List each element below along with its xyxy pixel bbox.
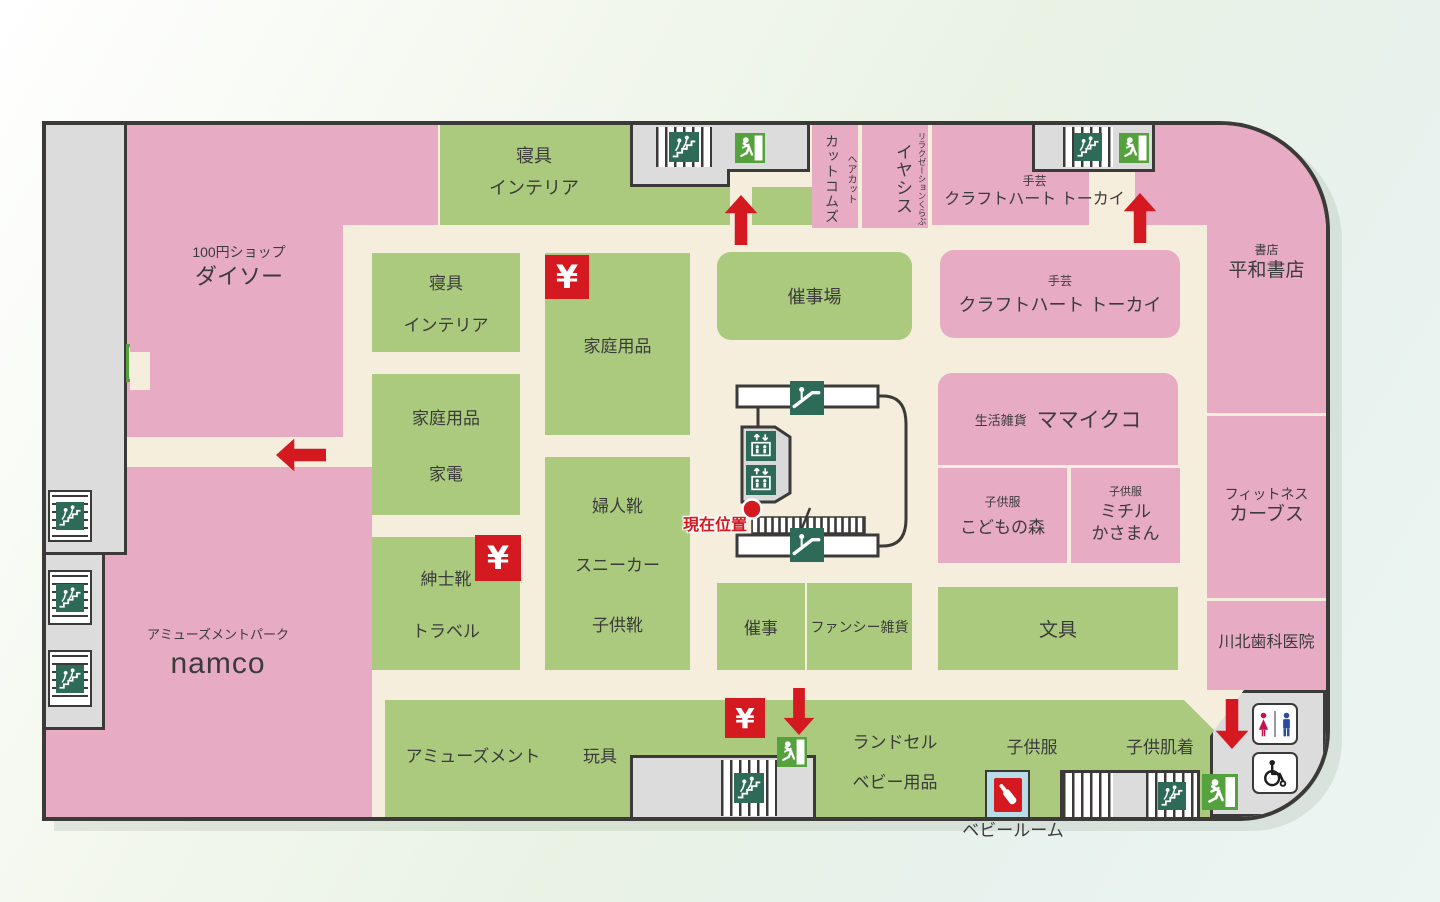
- store-category: ヘアカット: [843, 129, 858, 228]
- exit-icon: [777, 733, 807, 771]
- store-category: リラクゼーションくらぶ: [916, 129, 928, 228]
- stairs-hatch: [656, 127, 712, 167]
- store-name: 子供服: [1007, 738, 1058, 757]
- wheelchair-sign: [1252, 752, 1298, 794]
- label-kids-clothes: 子供服: [997, 737, 1067, 759]
- store-name: ファンシー雑貨: [811, 617, 909, 637]
- store-name-line: インテリア: [448, 173, 620, 205]
- exit-icon: [1202, 770, 1238, 814]
- walk-green-under-stairs: [630, 187, 730, 225]
- store-name: クラフトハート トーカイ: [932, 190, 1137, 211]
- stairs-icon: [56, 584, 84, 612]
- store-name-line: 寝具: [448, 141, 620, 173]
- store-name: イヤシス: [890, 129, 915, 228]
- stairs-hatch: [1063, 773, 1113, 818]
- direction-arrow-down: [782, 688, 816, 735]
- facility-name: ベビールーム: [962, 821, 1064, 840]
- stairwell-top-center: [630, 125, 810, 172]
- walkway-notch: [752, 172, 812, 187]
- label-craftheart-north: 手芸 クラフトハート トーカイ: [932, 174, 1137, 210]
- stairs-icon: [56, 502, 84, 530]
- store-area-kodomono-mori: 子供服 こどもの森: [938, 468, 1067, 563]
- store-name: 催事場: [788, 283, 842, 309]
- stairs-hatch: [1146, 773, 1197, 818]
- stairs-icon: [734, 773, 764, 803]
- baby-bottle-icon: [994, 778, 1022, 812]
- store-category: 手芸: [932, 174, 1137, 190]
- baby-room-area: [985, 770, 1030, 818]
- store-area-michiru-kasaman: 子供服 ミチル かさまん: [1071, 468, 1180, 563]
- escalator-icon: [790, 528, 824, 562]
- elevator-icon: [746, 431, 776, 461]
- store-area-futon-interior: 寝具 インテリア: [372, 253, 520, 352]
- store-category: 子供服: [984, 493, 1020, 510]
- store-category: 100円ショップ: [154, 243, 324, 261]
- stairs-left-1: [48, 490, 92, 542]
- stairs-icon: [56, 665, 84, 693]
- label-namco: アミューズメントパーク namco: [138, 627, 298, 683]
- toilet-man-icon: [1279, 711, 1294, 738]
- store-name-line: ランドセル: [840, 723, 950, 763]
- store-area-iyashisu: リラクゼーションくらぶ イヤシス: [862, 125, 928, 228]
- label-heiwa-shoten: 書店 平和書店: [1207, 243, 1326, 283]
- stairs-icon: [1074, 133, 1102, 161]
- exit-icon: [1119, 130, 1149, 166]
- stairs-left-3: [48, 650, 92, 707]
- store-category: 書店: [1207, 243, 1326, 259]
- toilet-divider: [1274, 711, 1276, 737]
- floor-map: ヘアカット カットコムズ リラクゼーションくらぶ イヤシス 寝具 インテリア 家…: [42, 121, 1330, 821]
- store-name-line: 紳士靴: [421, 565, 472, 590]
- direction-arrow-left: [276, 438, 326, 472]
- store-name: アミューズメント: [406, 747, 541, 766]
- store-area-ladies-shoes: 婦人靴 スニーカー 子供靴: [545, 457, 690, 670]
- store-name-line: 家庭用品: [412, 404, 480, 429]
- store-category: 手芸: [1048, 272, 1072, 289]
- toilet-sign: [1252, 703, 1298, 745]
- store-category: 子供服: [1109, 486, 1142, 500]
- yen-icon: ¥: [725, 698, 765, 738]
- store-name: カーブス: [1207, 503, 1326, 528]
- yen-icon: ¥: [545, 255, 589, 299]
- store-name-line: インテリア: [404, 311, 489, 336]
- store-area-saijijo: 催事場: [717, 252, 912, 340]
- store-area-saiji: 催事: [717, 583, 805, 670]
- store-name-line: 子供靴: [592, 611, 643, 636]
- store-area-bungu: 文具: [938, 587, 1178, 670]
- store-name: 玩具: [583, 747, 617, 766]
- wheelchair-icon: [1260, 758, 1290, 788]
- store-name: クラフトハート トーカイ: [959, 291, 1162, 317]
- label-toys: 玩具: [565, 746, 635, 768]
- stairwell-top-center-tab: [630, 169, 730, 187]
- elevator-icon: [746, 465, 776, 495]
- store-name-line: 婦人靴: [592, 492, 643, 517]
- current-location-label: 現在位置: [683, 511, 747, 535]
- yen-icon: ¥: [475, 535, 521, 581]
- store-name: namco: [138, 644, 298, 683]
- store-area-fancy-zakka: ファンシー雑貨: [807, 583, 912, 670]
- label-futon-interior-north: 寝具 インテリア: [448, 141, 620, 204]
- store-name-line: ベビー用品: [840, 763, 950, 803]
- store-name: 平和書店: [1207, 259, 1326, 284]
- label-amusement: アミューズメント: [403, 746, 543, 768]
- exit-icon: [735, 130, 765, 166]
- label-curves: フィットネス カーブス: [1207, 485, 1326, 528]
- walk-green-piece: [752, 187, 812, 225]
- label-baby-room: ベビールーム: [948, 820, 1078, 842]
- label-randoseru-baby: ランドセル ベビー用品: [840, 723, 950, 803]
- label-kawakita-dental: 川北歯科医院: [1205, 633, 1328, 654]
- direction-arrow-down: [1215, 699, 1249, 749]
- stairs-icon: [1158, 782, 1186, 810]
- store-area-craftheart-tokai: 手芸 クラフトハート トーカイ: [940, 250, 1180, 338]
- exit-icon: [92, 343, 130, 383]
- label-kids-underwear: 子供肌着: [1115, 737, 1205, 759]
- store-name: 文具: [1039, 615, 1077, 642]
- store-name: こどもの森: [960, 513, 1045, 538]
- store-name-line: 家電: [429, 460, 463, 485]
- escalator-icon: [790, 381, 824, 415]
- store-name-line: 寝具: [429, 269, 463, 294]
- store-name-line: スニーカー: [575, 551, 660, 576]
- stairs-hatch: [721, 760, 777, 816]
- stairwell-bottom-right: [1060, 770, 1200, 818]
- direction-arrow-up: [724, 195, 758, 245]
- store-name: 子供肌着: [1126, 738, 1194, 757]
- store-category: フィットネス: [1207, 485, 1326, 503]
- store-category: アミューズメントパーク: [138, 627, 298, 644]
- stairwell-top-right: [1032, 125, 1155, 172]
- toilet-woman-icon: [1256, 711, 1271, 738]
- store-name: ダイソー: [154, 263, 324, 292]
- store-name: カットコムズ: [822, 129, 842, 228]
- escalator-elevator-assembly: [720, 380, 932, 580]
- store-name: ママイクコ: [1037, 404, 1142, 434]
- store-name-line: トラベル: [412, 617, 480, 642]
- store-name: 川北歯科医院: [1205, 633, 1328, 654]
- store-area-cutcoms: ヘアカット カットコムズ: [812, 125, 858, 228]
- stairs-hatch: [1063, 127, 1113, 167]
- store-area-household-kaden: 家庭用品 家電: [372, 374, 520, 515]
- label-daiso: 100円ショップ ダイソー: [154, 243, 324, 292]
- store-category: 生活雑貨: [975, 410, 1027, 429]
- store-name: 催事: [744, 614, 778, 639]
- stairs-icon: [669, 132, 699, 162]
- store-name-line: ミチル: [1100, 501, 1151, 522]
- store-name: 家庭用品: [584, 332, 652, 357]
- stairs-left-2: [48, 570, 92, 625]
- store-name-line: かさまん: [1092, 523, 1160, 544]
- walkway-notch: [130, 352, 150, 390]
- store-area-mamaikuko: 生活雑貨 ママイクコ: [938, 373, 1178, 465]
- mall-floor-map-page: ヘアカット カットコムズ リラクゼーションくらぶ イヤシス 寝具 インテリア 家…: [0, 0, 1440, 902]
